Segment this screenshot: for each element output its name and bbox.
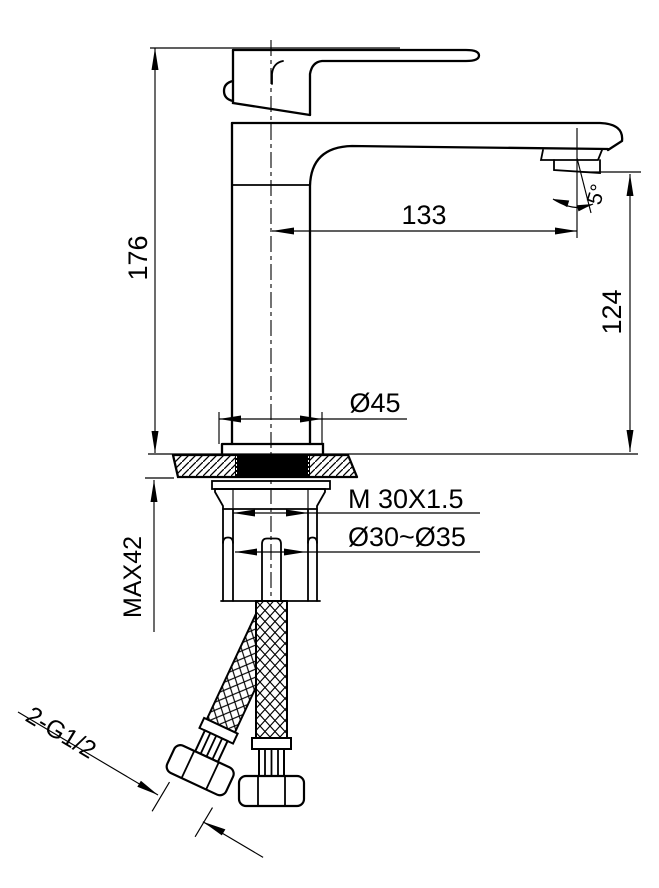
faucet-technical-drawing: 176 133 124 Ø45 M 30X1.5 Ø30~Ø35 MAX42 2… <box>0 0 659 888</box>
hose-right-nut <box>239 776 304 806</box>
dim-mounting-thread-label: M 30X1.5 <box>348 484 464 514</box>
dim-spout-reach-label: 133 <box>401 200 446 230</box>
dim-total-height-label: 176 <box>123 235 153 280</box>
drawing-canvas: 176 133 124 Ø45 M 30X1.5 Ø30~Ø35 MAX42 2… <box>0 0 659 888</box>
dim-hole-range-label: Ø30~Ø35 <box>348 522 466 552</box>
dim-base-diameter-label: Ø45 <box>349 388 400 418</box>
rubber-seal <box>235 455 310 477</box>
dim-spout-height-label: 124 <box>597 289 627 334</box>
dim-max-thickness-label: MAX42 <box>119 536 147 618</box>
drawing-background <box>0 0 659 888</box>
counter-cross-section <box>173 455 357 477</box>
